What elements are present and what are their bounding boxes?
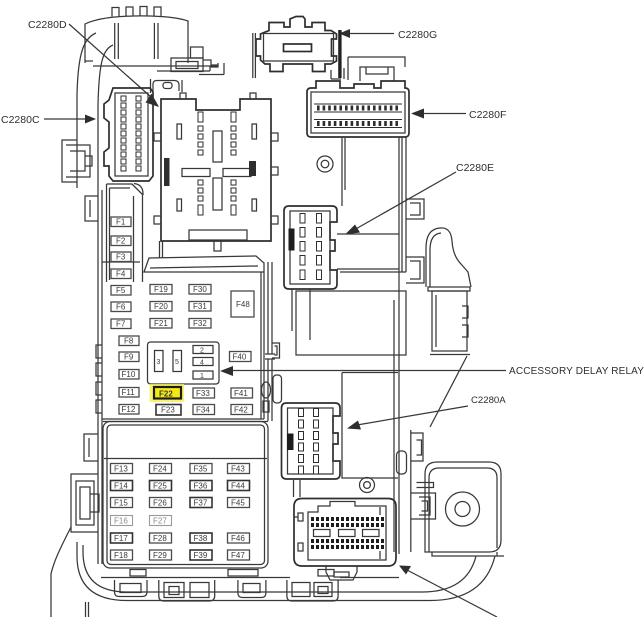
svg-text:F15: F15 [114, 499, 128, 508]
svg-text:F4: F4 [116, 270, 126, 279]
svg-text:C2280A: C2280A [471, 395, 506, 406]
svg-text:1: 1 [200, 373, 204, 380]
svg-text:F41: F41 [234, 389, 248, 398]
svg-text:F5: F5 [116, 286, 126, 295]
svg-text:F45: F45 [231, 499, 245, 508]
svg-text:F37: F37 [194, 499, 208, 508]
svg-text:5: 5 [175, 359, 179, 366]
svg-text:F44: F44 [231, 482, 245, 491]
svg-text:F7: F7 [116, 320, 126, 329]
svg-text:F10: F10 [122, 370, 136, 379]
svg-text:F46: F46 [231, 534, 245, 543]
svg-text:F42: F42 [234, 406, 248, 415]
svg-text:F17: F17 [114, 534, 128, 543]
svg-text:F29: F29 [153, 551, 167, 560]
svg-text:F1: F1 [116, 218, 126, 227]
svg-text:F3: F3 [116, 253, 126, 262]
svg-text:F24: F24 [153, 465, 167, 474]
svg-text:F14: F14 [114, 482, 128, 491]
svg-text:ACCESSORY DELAY RELAY: ACCESSORY DELAY RELAY [509, 366, 644, 377]
svg-text:F2: F2 [116, 237, 126, 246]
svg-text:F19: F19 [154, 285, 168, 294]
svg-text:F35: F35 [194, 465, 208, 474]
svg-text:F40: F40 [233, 353, 247, 362]
svg-text:C2280E: C2280E [456, 162, 494, 174]
svg-text:F33: F33 [196, 389, 210, 398]
svg-text:F48: F48 [236, 300, 250, 309]
svg-text:F23: F23 [161, 406, 175, 415]
svg-text:F43: F43 [231, 465, 245, 474]
svg-text:F16: F16 [114, 517, 128, 526]
svg-text:F28: F28 [153, 534, 167, 543]
svg-text:F25: F25 [153, 482, 167, 491]
svg-text:F39: F39 [194, 551, 208, 560]
svg-text:F13: F13 [114, 465, 128, 474]
svg-text:C2280G: C2280G [398, 29, 437, 41]
svg-text:2: 2 [200, 348, 204, 355]
svg-text:F47: F47 [231, 551, 245, 560]
svg-text:F18: F18 [114, 551, 128, 560]
svg-text:C2280D: C2280D [28, 19, 67, 31]
svg-text:F9: F9 [124, 353, 134, 362]
svg-text:4: 4 [200, 360, 204, 367]
svg-text:F8: F8 [124, 337, 134, 346]
svg-text:3: 3 [157, 359, 161, 366]
svg-text:F20: F20 [154, 302, 168, 311]
svg-text:F11: F11 [122, 388, 136, 397]
svg-text:F36: F36 [194, 482, 208, 491]
svg-text:F22: F22 [159, 390, 173, 399]
svg-text:F31: F31 [193, 302, 207, 311]
svg-text:F26: F26 [153, 499, 167, 508]
svg-text:C2280C: C2280C [1, 114, 40, 126]
svg-text:F12: F12 [122, 405, 136, 414]
svg-text:F32: F32 [193, 319, 207, 328]
svg-text:F30: F30 [193, 285, 207, 294]
svg-text:F27: F27 [153, 517, 167, 526]
svg-text:F38: F38 [194, 534, 208, 543]
svg-text:F6: F6 [116, 303, 126, 312]
svg-text:F34: F34 [196, 406, 210, 415]
svg-text:F21: F21 [154, 319, 168, 328]
svg-text:C2280F: C2280F [469, 109, 506, 121]
